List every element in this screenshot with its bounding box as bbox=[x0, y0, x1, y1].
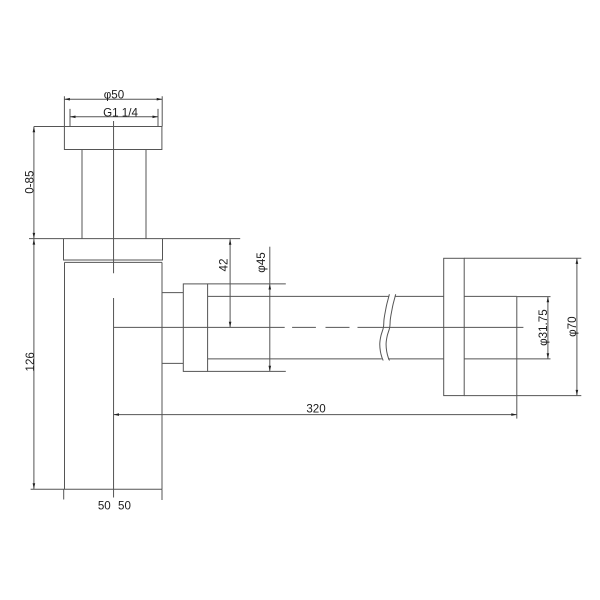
svg-text:42: 42 bbox=[217, 259, 230, 272]
svg-text:320: 320 bbox=[306, 403, 325, 416]
svg-text:φ45: φ45 bbox=[255, 252, 268, 272]
svg-text:50: 50 bbox=[118, 500, 131, 513]
svg-text:0-85: 0-85 bbox=[24, 171, 37, 194]
svg-text:126: 126 bbox=[24, 352, 37, 371]
svg-text:φ70: φ70 bbox=[566, 316, 579, 336]
svg-text:G1 1/4: G1 1/4 bbox=[103, 107, 138, 120]
svg-text:φ31.75: φ31.75 bbox=[537, 309, 550, 346]
svg-text:φ50: φ50 bbox=[104, 88, 124, 101]
svg-text:50: 50 bbox=[98, 500, 111, 513]
